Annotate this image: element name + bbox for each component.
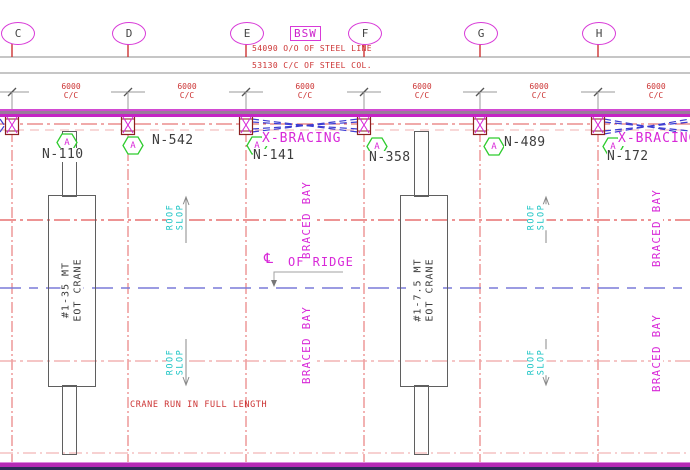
roof-slope-word: SLOP — [537, 349, 547, 375]
bsw-tag: BSW — [290, 26, 321, 41]
column-mark: N-542 — [152, 134, 194, 148]
roof-slope-label: ROOFSLOP — [167, 349, 186, 375]
dimension-ticks — [0, 44, 615, 110]
column-mark: N-358 — [369, 151, 411, 165]
ridge-leader — [271, 272, 343, 287]
grid-bubble-c: C — [1, 22, 35, 45]
roof-slope-word: SLOP — [176, 349, 186, 375]
grid-bubble-d: D — [112, 22, 146, 45]
column-mark: N-141 — [253, 149, 295, 163]
crane-capacity: #1-7.5 MT — [413, 258, 425, 321]
bay-dim-unit: C/C — [177, 92, 196, 101]
grid-bubble-label: E — [244, 27, 251, 40]
x-bracing-lines — [0, 119, 690, 134]
roof-slope-label: ROOFSLOP — [167, 204, 186, 230]
bay-dim-unit: C/C — [412, 92, 431, 101]
x-bracing-label: X-BRACING — [262, 132, 341, 146]
ridge-label: OF RIDGE — [288, 256, 354, 269]
column-badge: A — [483, 137, 505, 156]
column-badge-letter: A — [483, 137, 505, 156]
column-symbol — [6, 116, 19, 135]
bay-dim: 6000C/C — [177, 83, 196, 100]
braced-bay-label: BRACED BAY — [301, 306, 313, 384]
bay-dim: 6000C/C — [646, 83, 665, 100]
roof-slope-arrows — [183, 197, 549, 385]
braced-bay-label: BRACED BAY — [301, 181, 313, 259]
bay-dim-unit: C/C — [529, 92, 548, 101]
bay-dim: 6000C/C — [295, 83, 314, 100]
x-bracing-label: X-BRACING — [618, 132, 690, 146]
centerline-symbol: ℄ — [264, 252, 273, 266]
roof-slope-word: SLOP — [176, 204, 186, 230]
drawing-lines-layer — [0, 0, 690, 470]
grid-bubble-label: C — [15, 27, 22, 40]
column-badge: A — [122, 136, 144, 155]
braced-bay-label: BRACED BAY — [651, 189, 663, 267]
column-mark: N-489 — [504, 136, 546, 150]
roof-slope-word: SLOP — [537, 204, 547, 230]
column-symbol — [358, 116, 371, 135]
column-symbol — [122, 116, 135, 135]
column-symbol — [474, 116, 487, 135]
grid-bubble-h: H — [582, 22, 616, 45]
grid-bubble-f: F — [348, 22, 382, 45]
crane-rail — [62, 385, 77, 455]
bay-dim: 6000C/C — [61, 83, 80, 100]
grid-bubble-g: G — [464, 22, 498, 45]
drawing-canvas: C D E F G H BSW 54090 O/O OF STEEL LINE … — [0, 0, 690, 470]
crane-type: EOT CRANE — [424, 258, 436, 321]
bottom-steel-line-band — [0, 462, 690, 470]
overall-dim-steel-line: 54090 O/O OF STEEL LINE — [252, 44, 372, 53]
column-mark: N-110 — [42, 148, 84, 162]
column-symbol — [592, 116, 605, 135]
column-badge-letter: A — [122, 136, 144, 155]
grid-bubble-e: E — [230, 22, 264, 45]
column-mark: N-172 — [607, 150, 649, 164]
crane-rail — [414, 131, 429, 197]
bay-dim: 6000C/C — [412, 83, 431, 100]
column-symbol — [240, 116, 253, 135]
crane-capacity: #1-35 MT — [61, 258, 73, 321]
roof-slope-label: ROOFSLOP — [528, 204, 547, 230]
roof-slope-label: ROOFSLOP — [528, 349, 547, 375]
grid-bubble-label: G — [478, 27, 485, 40]
top-steel-line-band — [0, 109, 690, 117]
crane-rail — [414, 385, 429, 455]
bay-dim-unit: C/C — [61, 92, 80, 101]
crane-run-note: CRANE RUN IN FULL LENGTH — [130, 400, 267, 410]
braced-bay-label: BRACED BAY — [651, 314, 663, 392]
bay-dim: 6000C/C — [529, 83, 548, 100]
crane-label: #1-7.5 MT EOT CRANE — [413, 256, 436, 323]
overall-dim-steel-col: 53130 C/C OF STEEL COL. — [252, 61, 372, 70]
grid-bubble-label: F — [362, 27, 369, 40]
crane-label: #1-35 MT EOT CRANE — [61, 256, 84, 323]
bay-dim-unit: C/C — [295, 92, 314, 101]
bay-dim-unit: C/C — [646, 92, 665, 101]
crane-type: EOT CRANE — [72, 258, 84, 321]
grid-bubble-label: D — [126, 27, 133, 40]
grid-bubble-label: H — [596, 27, 603, 40]
